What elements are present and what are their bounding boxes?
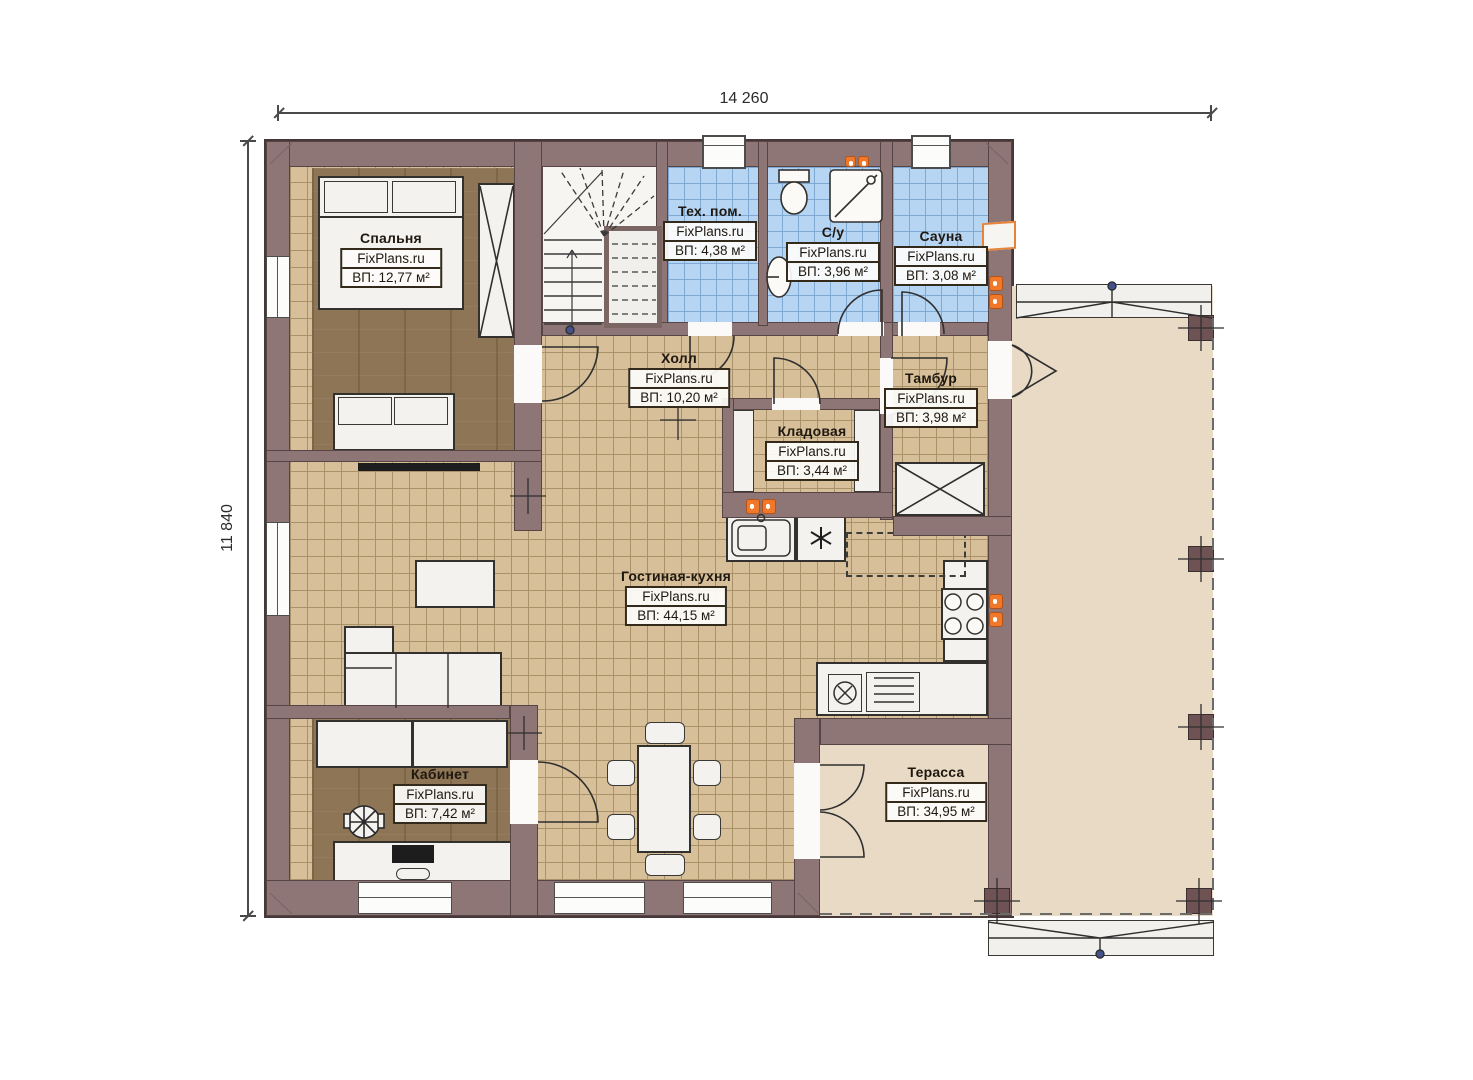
dimension-line-top (278, 112, 1211, 114)
dining-chair (693, 760, 721, 786)
under-stair-closet (604, 226, 662, 328)
kitchen-stove (941, 588, 988, 640)
room-label-hall: Холл FixPlans.ru ВП: 10,20 м² (628, 350, 730, 408)
sofa-bedroom-cushion (338, 397, 392, 425)
door-opening-entrance (988, 341, 1012, 399)
coffee-table (415, 560, 495, 608)
wall-bedroom-right (514, 141, 542, 531)
wall-office-top (266, 705, 510, 719)
window-living-left (266, 522, 290, 616)
room-name-office: Кабинет (393, 766, 487, 782)
room-card-office: FixPlans.ru ВП: 7,42 м² (393, 784, 487, 824)
room-card-living: FixPlans.ru ВП: 44,15 м² (625, 586, 727, 626)
room-card-bathroom: FixPlans.ru ВП: 3,96 м² (786, 242, 880, 282)
office-cabinet (316, 720, 413, 768)
office-cabinet (412, 720, 508, 768)
room-name-living: Гостиная-кухня (621, 568, 731, 584)
room-label-living: Гостиная-кухня FixPlans.ru ВП: 44,15 м² (621, 568, 731, 626)
wall-exterior-top (266, 141, 1012, 167)
terrace-steps-top (1016, 284, 1212, 318)
vent-top-sauna (911, 135, 951, 169)
room-name-terrace: Терасса (885, 764, 987, 780)
watermark: FixPlans.ru (665, 223, 755, 240)
room-area-sauna: ВП: 3,08 м² (896, 265, 986, 284)
dining-table (637, 745, 691, 853)
bed-pillow (392, 181, 456, 213)
room-area-pantry: ВП: 3,44 м² (767, 460, 857, 479)
room-label-sauna: Сауна FixPlans.ru ВП: 3,08 м² (894, 228, 988, 286)
wall-bath-sauna (880, 141, 893, 326)
dining-chair (645, 722, 685, 744)
room-name-sauna: Сауна (894, 228, 988, 244)
room-area-tech: ВП: 4,38 м² (665, 240, 755, 259)
wall-kitchen-notch-horizontal (820, 718, 1012, 745)
room-name-tech: Тех. пом. (663, 203, 757, 219)
room-area-office: ВП: 7,42 м² (395, 803, 485, 822)
room-name-bathroom: С/у (786, 224, 880, 240)
watermark: FixPlans.ru (788, 244, 878, 261)
door-opening-bathroom (838, 322, 884, 336)
sofa-bedroom-cushion (394, 397, 448, 425)
watermark: FixPlans.ru (630, 370, 728, 387)
vent-top-tech (702, 135, 746, 169)
door-opening-terrace-double (794, 763, 820, 859)
room-area-living: ВП: 44,15 м² (627, 605, 725, 624)
room-card-hall: FixPlans.ru ВП: 10,20 м² (628, 368, 730, 408)
terrace-column (984, 888, 1010, 914)
dining-chair (645, 854, 685, 876)
kitchen-hob-counter (796, 514, 846, 562)
wall-bedroom-bottom (266, 450, 542, 462)
door-opening-pantry (772, 398, 820, 410)
terrace-column (1188, 546, 1214, 572)
door-opening-tech (688, 322, 732, 336)
room-label-bathroom: С/у FixPlans.ru ВП: 3,96 м² (786, 224, 880, 282)
vestibule-closet (895, 462, 985, 516)
terrace-column (1188, 714, 1214, 740)
kitchen-sink-counter (726, 514, 796, 562)
room-label-pantry: Кладовая FixPlans.ru ВП: 3,44 м² (765, 423, 859, 481)
window-bedroom-left (266, 256, 290, 318)
wall-tech-bath (758, 141, 768, 326)
room-card-pantry: FixPlans.ru ВП: 3,44 м² (765, 441, 859, 481)
tv-living-wall (358, 463, 480, 471)
watermark: FixPlans.ru (887, 784, 985, 801)
room-card-sauna: FixPlans.ru ВП: 3,08 м² (894, 246, 988, 286)
door-opening-sauna (898, 322, 940, 336)
watermark: FixPlans.ru (395, 786, 485, 803)
terrace-floor-main (1012, 286, 1213, 916)
room-card-tech: FixPlans.ru ВП: 4,38 м² (663, 221, 757, 261)
room-label-terrace: Терасса FixPlans.ru ВП: 34,95 м² (885, 764, 987, 822)
window-dining-bottom-2 (683, 882, 772, 914)
room-area-hall: ВП: 10,20 м² (630, 387, 728, 406)
bed-blanket-line (320, 216, 462, 218)
room-card-terrace: FixPlans.ru ВП: 34,95 м² (885, 782, 987, 822)
radiator-pantry (746, 499, 776, 514)
dimension-width-label: 14 260 (720, 90, 769, 108)
dimension-line-left (247, 141, 249, 916)
bed-pillow (324, 181, 388, 213)
watermark: FixPlans.ru (627, 588, 725, 605)
room-area-bedroom: ВП: 12,77 м² (342, 267, 440, 286)
terrace-column (1188, 315, 1214, 341)
wardrobe-bedroom (478, 183, 515, 338)
kitchen-upper-cabinets (846, 532, 966, 577)
office-monitor (392, 845, 434, 863)
terrace-steps-bottom (988, 920, 1214, 956)
room-card-bedroom: FixPlans.ru ВП: 12,77 м² (340, 248, 442, 288)
radiator-shower-taps (845, 156, 869, 167)
dining-chair (693, 814, 721, 840)
terrace-column (1186, 888, 1212, 914)
room-label-tech: Тех. пом. FixPlans.ru ВП: 4,38 м² (663, 203, 757, 261)
watermark: FixPlans.ru (896, 248, 986, 265)
room-label-bedroom: Спальня FixPlans.ru ВП: 12,77 м² (340, 230, 442, 288)
room-name-hall: Холл (628, 350, 730, 366)
watermark: FixPlans.ru (767, 443, 857, 460)
room-area-terrace: ВП: 34,95 м² (887, 801, 985, 820)
window-office-bottom (358, 882, 452, 914)
wall-vestibule-bottom (893, 516, 1012, 536)
radiator-kitchen-wall (989, 594, 1003, 627)
watermark: FixPlans.ru (342, 250, 440, 267)
room-area-vestibule: ВП: 3,98 м² (886, 407, 976, 426)
room-label-vestibule: Тамбур FixPlans.ru ВП: 3,98 м² (884, 370, 978, 428)
room-label-office: Кабинет FixPlans.ru ВП: 7,42 м² (393, 766, 487, 824)
dining-chair (607, 814, 635, 840)
kitchen-oven (866, 672, 920, 712)
kitchen-small-sink-unit (828, 674, 862, 712)
room-name-vestibule: Тамбур (884, 370, 978, 386)
door-opening-office (510, 760, 538, 824)
room-name-bedroom: Спальня (340, 230, 442, 246)
watermark: FixPlans.ru (886, 390, 976, 407)
radiator-sauna-wall (989, 276, 1003, 309)
room-area-bathroom: ВП: 3,96 м² (788, 261, 878, 280)
door-opening-bedroom (514, 345, 542, 403)
corner-sofa-base (344, 652, 502, 710)
dimension-height-label: 11 840 (219, 504, 237, 552)
floor-plan-page: { "meta": { "watermark": "FixPlans.ru" }… (0, 0, 1473, 1080)
dining-chair (607, 760, 635, 786)
room-card-vestibule: FixPlans.ru ВП: 3,98 м² (884, 388, 978, 428)
room-name-pantry: Кладовая (765, 423, 859, 439)
office-keyboard (396, 868, 430, 880)
window-dining-bottom-1 (554, 882, 645, 914)
